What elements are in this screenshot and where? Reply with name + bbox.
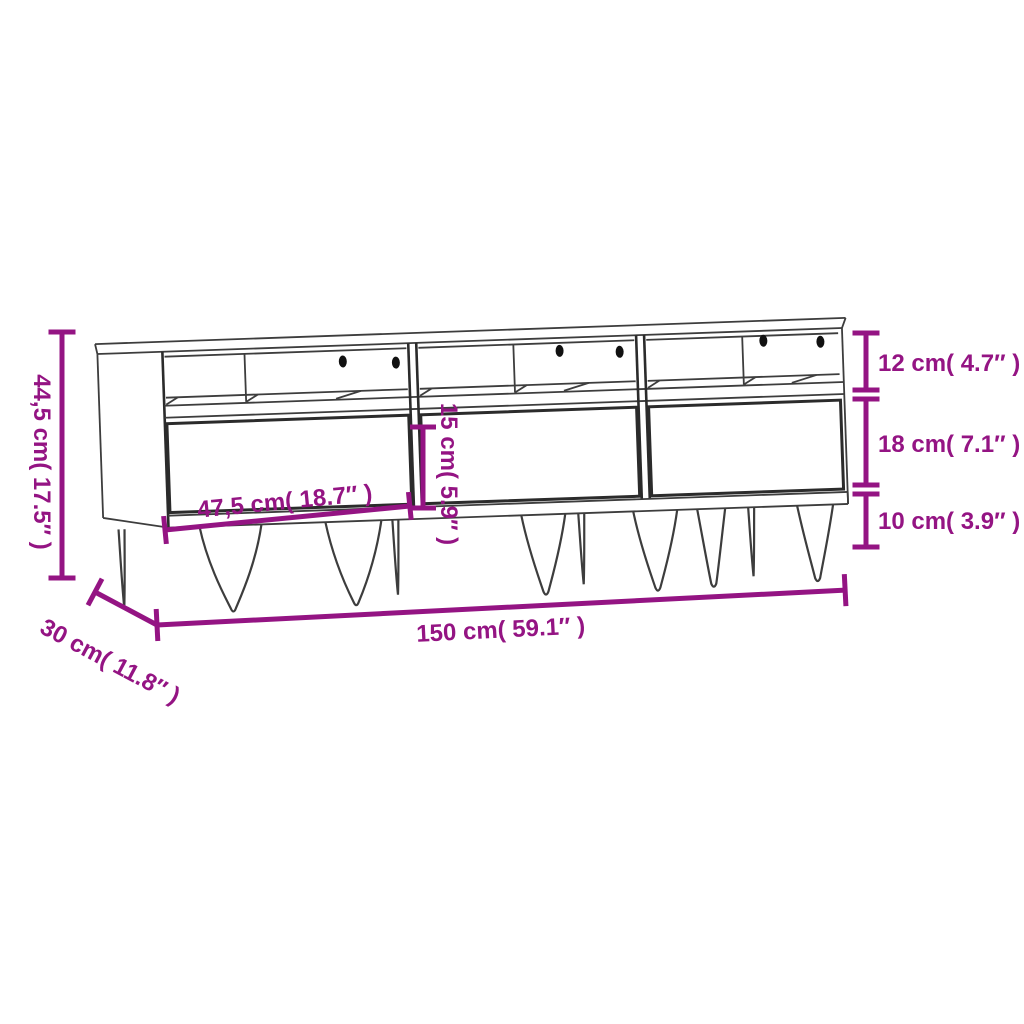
hairpin-leg (748, 507, 756, 576)
dim-open-shelf-height-label: 12 cm( 4.7″ ) (878, 350, 1020, 377)
dim-total-width: 150 cm( 59.1″ ) (156, 574, 847, 661)
cabinet-left-side-panel (97, 352, 168, 530)
open-compartment-2 (418, 340, 636, 396)
dim-leg-height-label: 10 cm( 3.9″ ) (878, 508, 1020, 535)
drawer-3 (649, 400, 844, 496)
hairpin-leg (521, 514, 568, 595)
cable-hole (392, 356, 400, 368)
cable-hole (615, 346, 623, 358)
open-compartment-1 (165, 348, 409, 404)
product-dimension-diagram: 44,5 cm( 17.5″ ) 12 cm( 4.7″ ) 18 cm( 7.… (0, 0, 1024, 1024)
cable-hole (555, 345, 563, 357)
dim-total-height-label: 44,5 cm( 17.5″ ) (28, 374, 55, 550)
cable-hole (816, 336, 824, 348)
dim-drawer-section-height-label: 18 cm( 7.1″ ) (878, 431, 1020, 458)
hairpin-leg (199, 524, 264, 612)
dim-drawer-section-height: 18 cm( 7.1″ ) (853, 399, 1021, 485)
hairpin-leg (697, 508, 728, 587)
dim-open-shelf-height: 12 cm( 4.7″ ) (853, 333, 1021, 390)
dim-total-height: 44,5 cm( 17.5″ ) (28, 332, 76, 578)
hairpin-leg (633, 510, 680, 591)
open-compartment-3 (646, 332, 840, 388)
dim-depth-label: 30 cm( 11.8″ ) (36, 614, 185, 710)
dim-leg-height: 10 cm( 3.9″ ) (853, 494, 1021, 547)
dim-total-width-label: 150 cm( 59.1″ ) (416, 612, 586, 648)
cable-hole (339, 355, 347, 367)
dim-drawer-inner-height-label: 15 cm( 5.9″ ) (435, 403, 462, 545)
hairpin-leg (119, 529, 128, 608)
hairpin-leg (578, 513, 586, 584)
hairpin-legs (119, 504, 837, 615)
hairpin-leg (797, 504, 836, 581)
hairpin-leg (325, 520, 384, 606)
hairpin-leg (392, 520, 401, 595)
tv-cabinet (95, 318, 855, 616)
